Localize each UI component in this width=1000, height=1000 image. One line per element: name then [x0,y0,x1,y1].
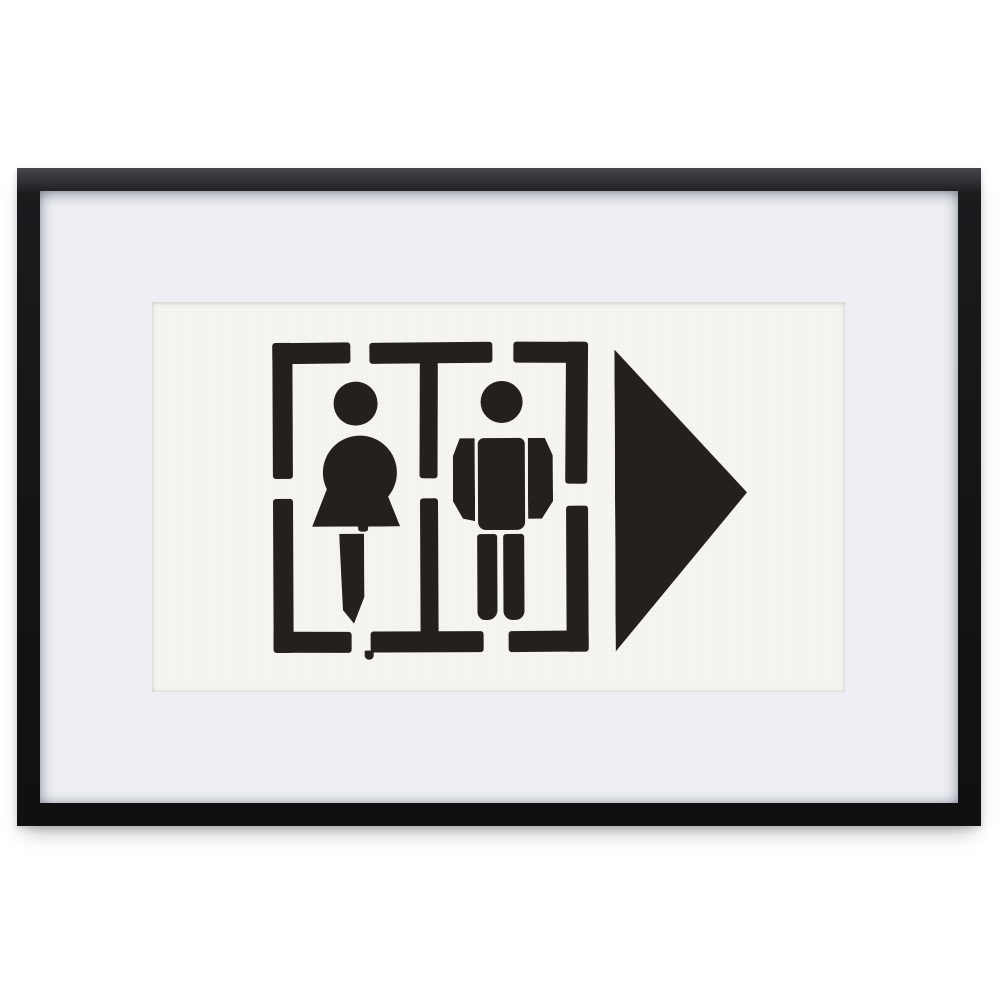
stencil-border-bottom-left-horizontal [274,632,352,653]
man-head [480,381,522,423]
stencil-border-top-left-vertical [272,343,293,479]
man-left-arm [453,438,475,521]
woman-head [333,382,377,426]
mat-board [40,191,958,803]
restroom-sign-stencil [151,300,846,693]
man-figure-icon [151,300,844,303]
stencil-border-bottom-center [371,631,484,652]
man-torso [478,438,525,530]
man-right-arm [528,438,553,519]
stencil-border-bottom-right-horizontal [509,630,589,652]
stencil-divider-top [420,361,438,478]
art-print-paper [152,302,845,692]
arrow-right-icon [614,349,747,652]
stencil-divider-bottom [420,498,439,634]
picture-frame [17,168,981,826]
man-right-leg [503,534,524,620]
ink-drip-mark [365,651,374,660]
stencil-border-bottom-left-vertical [273,499,294,653]
stencil-border-top-right-vertical [565,342,588,484]
woman-figure-icon [151,300,844,303]
woman-skirt-tab [358,525,368,532]
man-left-leg [477,534,497,620]
woman-leg [339,534,364,624]
